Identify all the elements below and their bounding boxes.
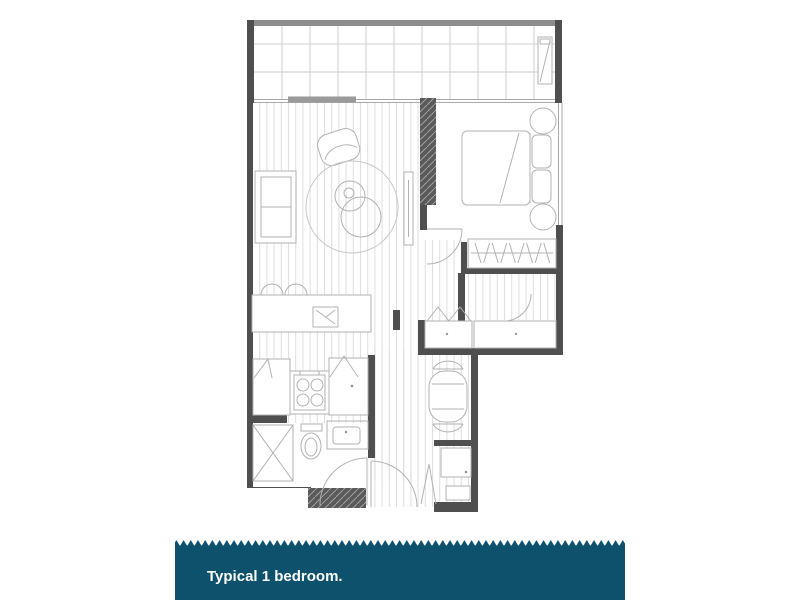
double-bed — [462, 131, 551, 205]
bathroom-wall — [368, 355, 375, 458]
hanging-rail-hangers — [475, 243, 550, 263]
laundry-tub — [446, 486, 470, 500]
east-wall — [556, 225, 563, 355]
balcony-left-wall — [247, 20, 254, 103]
balcony-planter — [538, 37, 552, 84]
banner-label: Typical 1 bedroom. — [207, 568, 343, 585]
hall-east-wall — [471, 355, 478, 512]
fridge-cabinet — [253, 359, 290, 415]
wardrobe — [468, 239, 556, 268]
banner-zigzag-edge — [175, 540, 625, 546]
wardrobe-wall — [461, 268, 558, 274]
laundry-wall — [434, 440, 471, 446]
washing-machine — [441, 448, 471, 477]
balcony-right-wall — [555, 20, 562, 103]
west-wall — [247, 103, 253, 485]
pillow — [532, 135, 551, 168]
living-bedroom-hatched-wall — [420, 98, 436, 205]
bedside-table — [530, 108, 556, 134]
balcony-top-wall — [247, 20, 562, 26]
sofa — [255, 171, 296, 243]
bedroom-window — [559, 103, 563, 225]
caption-banner: Typical 1 bedroom. — [175, 540, 625, 600]
entry-hatched-wall — [308, 488, 366, 508]
floor-plan-image: Typical 1 bedroom. — [0, 0, 800, 600]
dining-table — [429, 371, 467, 422]
pantry-cabinet — [329, 356, 368, 415]
balcony — [247, 20, 562, 103]
pillow — [532, 170, 551, 203]
bedside-table — [530, 204, 556, 230]
kitchen-island — [252, 295, 371, 332]
closet-wall — [418, 348, 556, 355]
cooktop — [290, 371, 329, 414]
tv-unit — [404, 172, 413, 245]
sliding-door-panel — [288, 97, 356, 103]
floor-plan-page: Typical 1 bedroom. — [0, 0, 800, 600]
